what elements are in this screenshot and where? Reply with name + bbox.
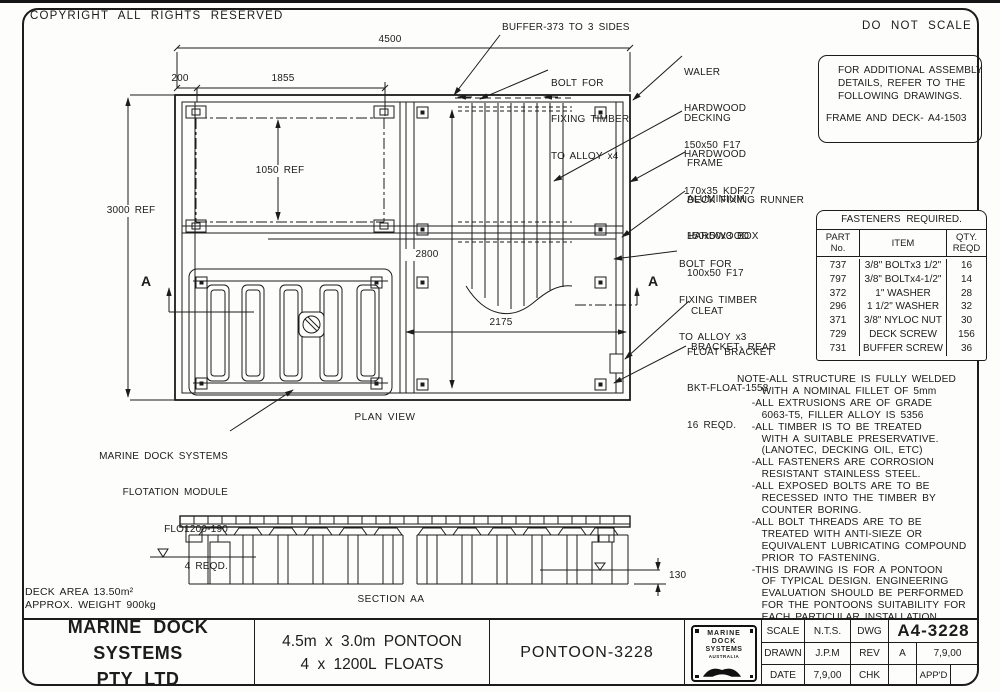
col-header-part: PART No. [817,230,860,256]
cleat-logo-icon [701,664,743,678]
dim-deck-length: 2800 [405,249,449,261]
company-name-cell: MARINE DOCK SYSTEMS PTY LTD [22,620,255,686]
date-label: DATE [762,664,804,686]
drawing-sheet: COPYRIGHT ALL RIGHTS RESERVED DO NOT SCA… [0,0,1000,692]
note-line: -ALL BOLT THREADS ARE TO BE [737,517,966,529]
appd-label: APP'D [916,664,950,686]
note-line: -THIS DRAWING IS FOR A PONTOON [737,565,966,577]
fastener-row: 729DECK SCREW156 [817,328,986,342]
scale-label: SCALE [762,620,804,642]
weight-note: APPROX. WEIGHT 900kg [25,599,156,611]
fastener-row: 2961 1/2" WASHER32 [817,300,986,314]
col-header-qty: QTY. REQD [947,230,986,256]
assembly-reference-box: FOR ADDITIONAL ASSEMBLY DETAILS, REFER T… [818,55,982,143]
rev-label: REV [850,642,888,664]
dwg-number-cell: A4-3228 [888,620,978,642]
logo-corner-dot [695,675,699,679]
rev-date: 7,9,00 [916,642,978,664]
rev-value: A [888,642,916,664]
logo-corner-dot [750,675,754,679]
deck-area-note: DECK AREA 13.50m² [25,586,133,598]
dim-bay-width: 2175 [478,317,524,329]
note-line: EQUIVALENT LUBRICATING COMPOUND [737,541,966,553]
note-line: (LANOTEC, DECKING OIL, ETC) [737,445,966,457]
col-header-item: ITEM [860,230,947,256]
section-marker-left: A [141,275,151,287]
callout-flotation-module: MARINE DOCK SYSTEMS FLOTATION MODULE FLO… [94,426,228,598]
company-logo: MARINE DOCK SYSTEMS AUSTRALIA [691,625,757,682]
scale-value: N.T.S. [804,620,850,642]
chk-label: CHK [850,664,888,686]
section-cut-markers [169,288,637,312]
assembly-ref-drawing: FRAME AND DECK- A4-1503 [826,113,967,125]
plan-view-title: PLAN VIEW [330,412,440,424]
do-not-scale-note: DO NOT SCALE [862,20,972,32]
revision-grid: SCALE N.T.S. DWG A4-3228 DRAWN J.P.M REV… [762,620,978,686]
note-line: -ALL FASTENERS ARE CORROSION [737,457,966,469]
cleat-bracket-notch [610,354,623,373]
note-line: PRIOR TO FASTENING. [737,553,966,565]
title-block: MARINE DOCK SYSTEMS PTY LTD 4.5m x 3.0m … [22,618,978,686]
fastener-row: 7973/8" BOLTx4-1/2"14 [817,273,986,287]
fasteners-title: FASTENERS REQUIRED. [817,211,986,230]
fastener-row: 7373/8" BOLTx3 1/2"16 [817,259,986,273]
float-top-bumps [199,528,618,535]
note-line: -ALL EXTRUSIONS ARE OF GRADE [737,398,966,410]
fastener-row: 731BUFFER SCREW36 [817,342,986,356]
section-aa-title: SECTION AA [336,594,446,606]
note-line: OF TYPICAL DESIGN. ENGINEERING [737,576,966,588]
dim-module-height: 1050 REF [247,165,313,177]
dim-overall-width: 4500 [360,34,420,46]
float-legs [208,535,609,584]
dwg-number: A4-3228 [897,621,969,641]
fastener-row: 3713/8" NYLOC NUT30 [817,314,986,328]
callout-buffer: BUFFER-373 TO 3 SIDES [502,22,630,34]
note-line: TREATED WITH ANTI-SIEZE OR [737,529,966,541]
bolt-squares [196,107,606,390]
float-plug [299,312,324,337]
fastener-row: 3721" WASHER28 [817,287,986,301]
note-line: RECESSED INTO THE TIMBER BY [737,493,966,505]
drawn-label: DRAWN [762,642,804,664]
note-line: WITH A SUITABLE PRESERVATIVE. [737,434,966,446]
flotation-module [189,269,392,395]
dim-overall-height: 3000 REF [97,205,165,217]
general-notes: NOTE-ALL STRUCTURE IS FULLY WELDED WITH … [737,374,966,624]
note-line: WITH A NOMINAL FILLET OF 5mm [737,386,966,398]
note-line: EVALUATION SHOULD BE PERFORMED [737,588,966,600]
section-marker-right: A [648,275,658,287]
callout-bolt-alloy4: BOLT FOR FIXING TIMBER TO ALLOY x4 [551,53,629,188]
dim-module-width: 1855 [260,73,306,85]
fasteners-rows: 7373/8" BOLTx3 1/2"16 7973/8" BOLTx4-1/2… [817,257,986,360]
note-line: 6063-T5, FILLER ALLOY IS 5356 [737,410,966,422]
dim-freeboard: 130 [669,570,686,582]
note-line: RESISTANT STAINLESS STEEL. [737,469,966,481]
note-line: -ALL TIMBER IS TO BE TREATED [737,422,966,434]
drawn-value: J.P.M [804,642,850,664]
assembly-ref-line: DETAILS, REFER TO THE [838,78,965,90]
assembly-ref-line: FOR ADDITIONAL ASSEMBLY [838,65,983,77]
product-description-cell: 4.5m x 3.0m PONTOON 4 x 1200L FLOATS [255,620,490,686]
note-line: -ALL EXPOSED BOLTS ARE TO BE [737,481,966,493]
fasteners-header-row: PART No. ITEM QTY. REQD [817,230,986,257]
dwg-label: DWG [850,620,888,642]
assembly-ref-line: FOLLOWING DRAWINGS. [838,91,962,103]
appd-value [950,664,978,686]
note-line: COUNTER BORING. [737,505,966,517]
fasteners-table: FASTENERS REQUIRED. PART No. ITEM QTY. R… [816,210,987,361]
dim-edge-offset: 200 [167,73,193,85]
note-line: FOR THE PONTOONS SUITABILITY FOR [737,600,966,612]
copyright-note: COPYRIGHT ALL RIGHTS RESERVED [30,10,283,22]
freeboard-dimension [634,558,666,596]
logo-cell: MARINE DOCK SYSTEMS AUSTRALIA [685,620,762,686]
date-value: 7,9,00 [804,664,850,686]
chk-value [888,664,916,686]
drawing-name-cell: PONTOON-3228 [490,620,685,686]
note-line: NOTE-ALL STRUCTURE IS FULLY WELDED [737,374,966,386]
